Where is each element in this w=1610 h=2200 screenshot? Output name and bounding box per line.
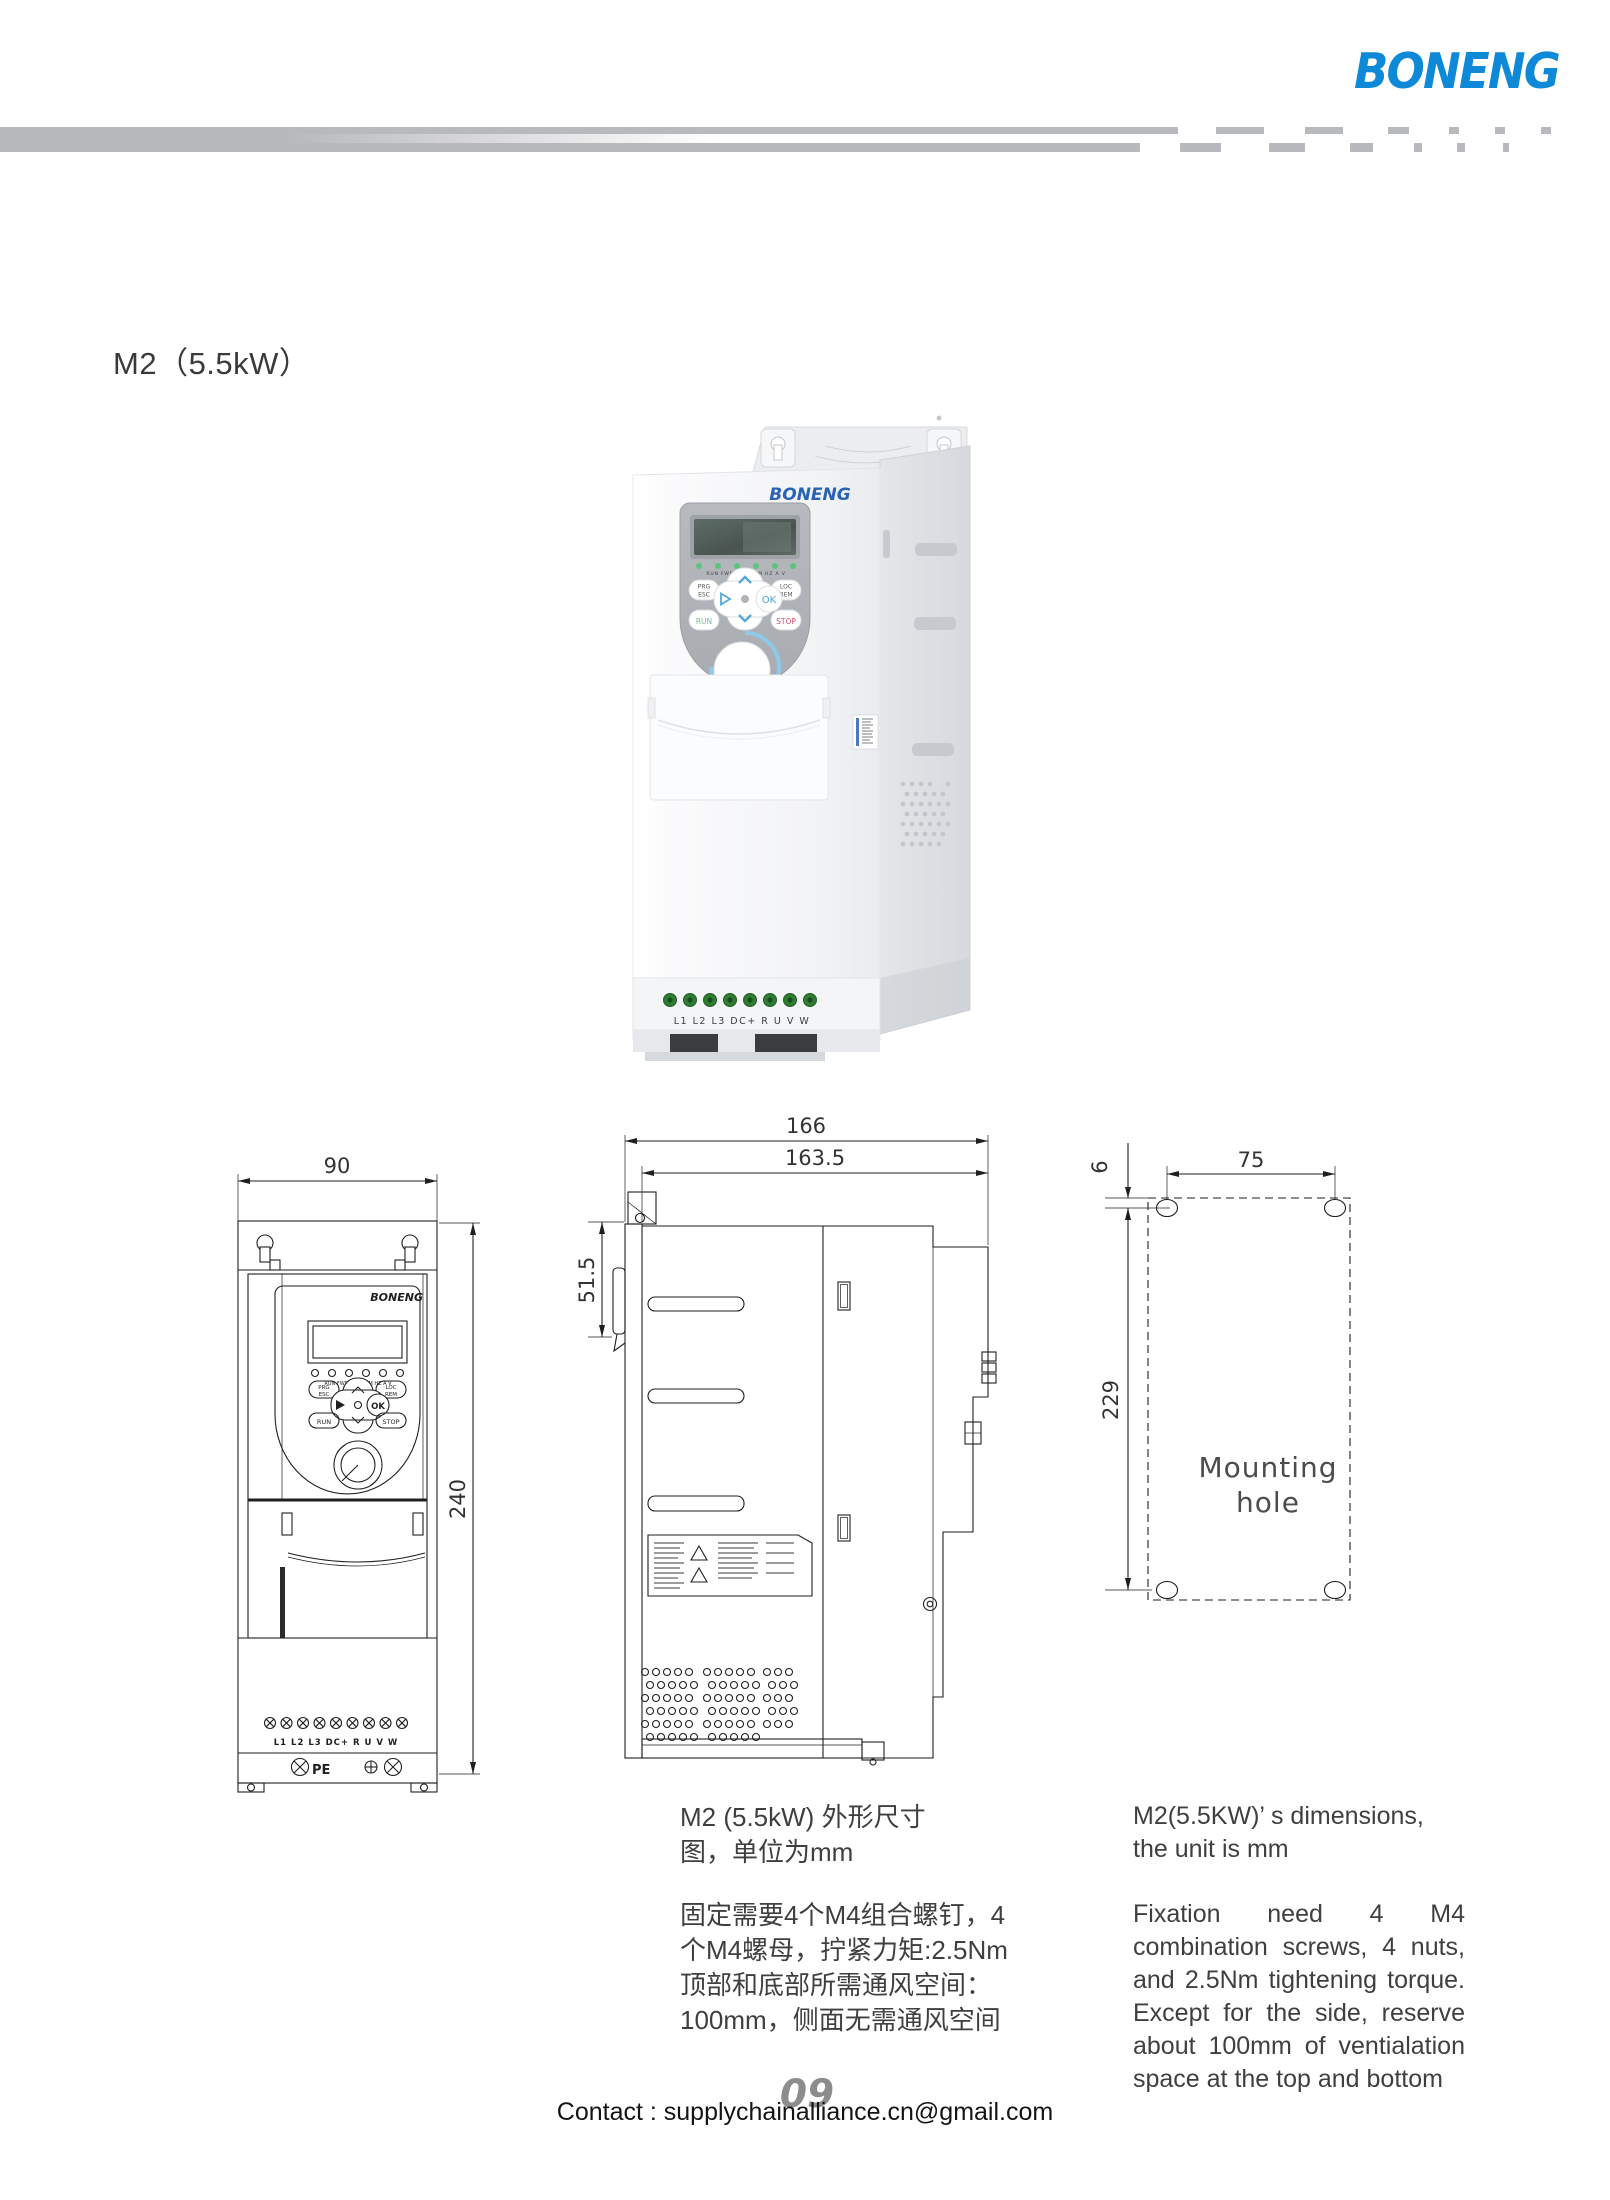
warning-label xyxy=(648,1535,812,1596)
warning-triangle-icon xyxy=(691,1568,707,1582)
caption-line: combination screws, 4 nuts, xyxy=(1133,1931,1465,1964)
side-dots xyxy=(642,1669,798,1741)
caption-line: M2(5.5KW)’ s dimensions, xyxy=(1133,1800,1465,1833)
header-bar-bottom-dash xyxy=(1350,143,1373,152)
esc-label: ESC xyxy=(698,592,710,599)
terminal-strip: L1 L2 L3 DC+ R U V W xyxy=(633,978,880,1061)
caption-line: space at the top and bottom xyxy=(1133,2063,1465,2096)
manual-page: BONENG M2（5.5kW） xyxy=(0,0,1610,2200)
caption-line: 100mm，侧面无需通风空间 xyxy=(680,2003,1025,2038)
mounting-plate-outline xyxy=(1148,1198,1350,1600)
header-bar-bottom-dash xyxy=(1457,143,1465,152)
arrow-pad-center xyxy=(741,595,749,603)
front-view-logo: BONENG xyxy=(370,1291,423,1304)
side-vent xyxy=(883,530,890,558)
front-terminal-box: L1 L2 L3 DC+ R U V W PE xyxy=(238,1638,437,1792)
side-bottom-strip xyxy=(642,1739,884,1765)
front-terminal-labels: L1 L2 L3 DC+ R U V W xyxy=(274,1738,399,1748)
run-label: RUN xyxy=(696,617,712,626)
door-clip xyxy=(823,698,830,718)
dim-hole-vertical-229: 229 xyxy=(1099,1208,1152,1590)
caption-line: and 2.5Nm tightening torque. xyxy=(1133,1964,1465,1997)
front-knob-indicator xyxy=(342,1465,358,1481)
loc-label: LOC xyxy=(780,584,792,591)
svg-text:240: 240 xyxy=(446,1479,470,1519)
header-bar-bottom-dash xyxy=(1269,143,1305,152)
front-rem: REM xyxy=(385,1392,397,1398)
front-middle-cover xyxy=(248,1500,427,1638)
bottom-connector xyxy=(670,1034,718,1054)
door-clip xyxy=(648,698,655,718)
front-outline xyxy=(238,1221,437,1783)
warning-triangle-icon xyxy=(691,1546,707,1560)
caption-line: Except for the side, reserve xyxy=(1133,1997,1465,2030)
caption-line: 个M4螺母，拧紧力矩:2.5Nm xyxy=(680,1933,1025,1968)
dim-height-240: 240 xyxy=(439,1223,480,1774)
product-photo: BONENG RUN FWD LOC/REM HZ A V PRG ESC xyxy=(615,418,1005,1073)
header-bar-bottom-dash xyxy=(1180,143,1221,152)
dim-top-offset-6: 6 xyxy=(1088,1143,1170,1208)
bottom-foot xyxy=(645,1052,825,1061)
page-title: M2（5.5kW） xyxy=(113,338,310,383)
front-view-drawing: 90 BONENG RUN FWD LOC/REM HZ A V PRG xyxy=(225,1155,485,1800)
front-loc: LOC xyxy=(385,1385,396,1391)
front-door xyxy=(648,675,830,800)
caption-line: 顶部和底部所需通风空间： xyxy=(680,1968,1025,2003)
mounting-holes xyxy=(1157,1200,1346,1599)
side-vent-slots xyxy=(648,1297,744,1511)
svg-text:163.5: 163.5 xyxy=(785,1146,845,1170)
front-esc: ESC xyxy=(319,1392,330,1398)
photo-side-face xyxy=(880,416,970,1034)
dim-hole-spacing-75: 75 xyxy=(1167,1148,1335,1199)
header-bar-top-dash xyxy=(1495,127,1505,134)
header-bar-gradient xyxy=(0,134,720,143)
pe-label: PE xyxy=(312,1763,330,1778)
caption-line: 图，单位为mm xyxy=(680,1835,1025,1870)
side-view-drawing: 166 163.5 51.5 xyxy=(580,1112,1005,1812)
caption-en-fixation: Fixation need 4 M4 combination screws, 4… xyxy=(1133,1898,1465,2096)
header-bar-bottom xyxy=(0,143,1140,152)
contact-line[interactable]: Contact : supplychainalliance.cn@gmail.c… xyxy=(545,2098,1065,2127)
side-sticker xyxy=(853,715,878,749)
header-bar-bottom-dash xyxy=(1414,143,1422,152)
dim-back-51-5: 51.5 xyxy=(575,1222,624,1337)
mounting-label-line2: hole xyxy=(1236,1486,1300,1519)
brand-logo: BONENG xyxy=(1354,40,1538,104)
header-bar-top-dash xyxy=(1449,127,1459,134)
keyhole-icon xyxy=(774,445,782,460)
side-vent xyxy=(912,743,954,756)
dim-width-90: 90 xyxy=(238,1154,437,1221)
front-prg: PRG xyxy=(318,1385,329,1391)
svg-text:90: 90 xyxy=(324,1154,351,1178)
device-logo: BONENG xyxy=(769,485,850,505)
header-bar-top-dash xyxy=(1388,127,1409,134)
caption-line: M2 (5.5kW) 外形尺寸 xyxy=(680,1800,1025,1835)
caption-en-dimensions: M2(5.5KW)’ s dimensions, the unit is mm xyxy=(1133,1800,1465,1866)
svg-text:229: 229 xyxy=(1099,1380,1123,1420)
header-bar-top xyxy=(0,127,1178,134)
prg-label: PRG xyxy=(698,584,711,591)
side-vent xyxy=(914,617,956,630)
caption-cn-fixation: 固定需要4个M4组合螺钉，4 个M4螺母，拧紧力矩:2.5Nm 顶部和底部所需通… xyxy=(680,1898,1025,2038)
header-bar-top-dash xyxy=(1216,127,1264,134)
dim-total-166: 166 xyxy=(625,1114,988,1245)
caption-line: about 100mm of ventialation xyxy=(1133,2030,1465,2063)
front-stop: STOP xyxy=(382,1418,399,1426)
header-bar-top-dash xyxy=(1541,127,1551,134)
svg-text:166: 166 xyxy=(786,1114,826,1138)
mounting-hole-drawing: 6 75 229 Mounting hole xyxy=(1090,1135,1380,1620)
ok-label: OK xyxy=(762,595,777,606)
caption-line: the unit is mm xyxy=(1133,1833,1465,1866)
caption-line: Fixation need 4 M4 xyxy=(1133,1898,1465,1931)
header-bar-bottom-dash xyxy=(1503,143,1509,152)
terminal-labels: L1 L2 L3 DC+ R U V W xyxy=(674,1016,811,1027)
caption-cn-dimensions: M2 (5.5kW) 外形尺寸 图，单位为mm xyxy=(680,1800,1025,1870)
front-ok: OK xyxy=(371,1402,385,1412)
caption-line: 固定需要4个M4组合螺钉，4 xyxy=(680,1898,1025,1933)
side-vent xyxy=(915,543,957,556)
svg-text:6: 6 xyxy=(1088,1160,1112,1173)
front-keypad: BONENG RUN FWD LOC/REM HZ A V PRG ESC LO… xyxy=(275,1286,423,1494)
header-bar-top-dash xyxy=(1305,127,1343,134)
dim-body-163-5: 163.5 xyxy=(642,1146,988,1222)
svg-text:75: 75 xyxy=(1238,1148,1265,1172)
front-run: RUN xyxy=(317,1418,331,1426)
mounting-label-line1: Mounting xyxy=(1198,1451,1337,1484)
photo-front-face: BONENG RUN FWD LOC/REM HZ A V PRG ESC xyxy=(633,468,880,1061)
bottom-connector xyxy=(755,1034,817,1054)
svg-text:51.5: 51.5 xyxy=(575,1257,599,1304)
stop-label: STOP xyxy=(776,617,796,626)
front-leds xyxy=(312,1370,404,1377)
lcd-glare xyxy=(743,522,791,552)
